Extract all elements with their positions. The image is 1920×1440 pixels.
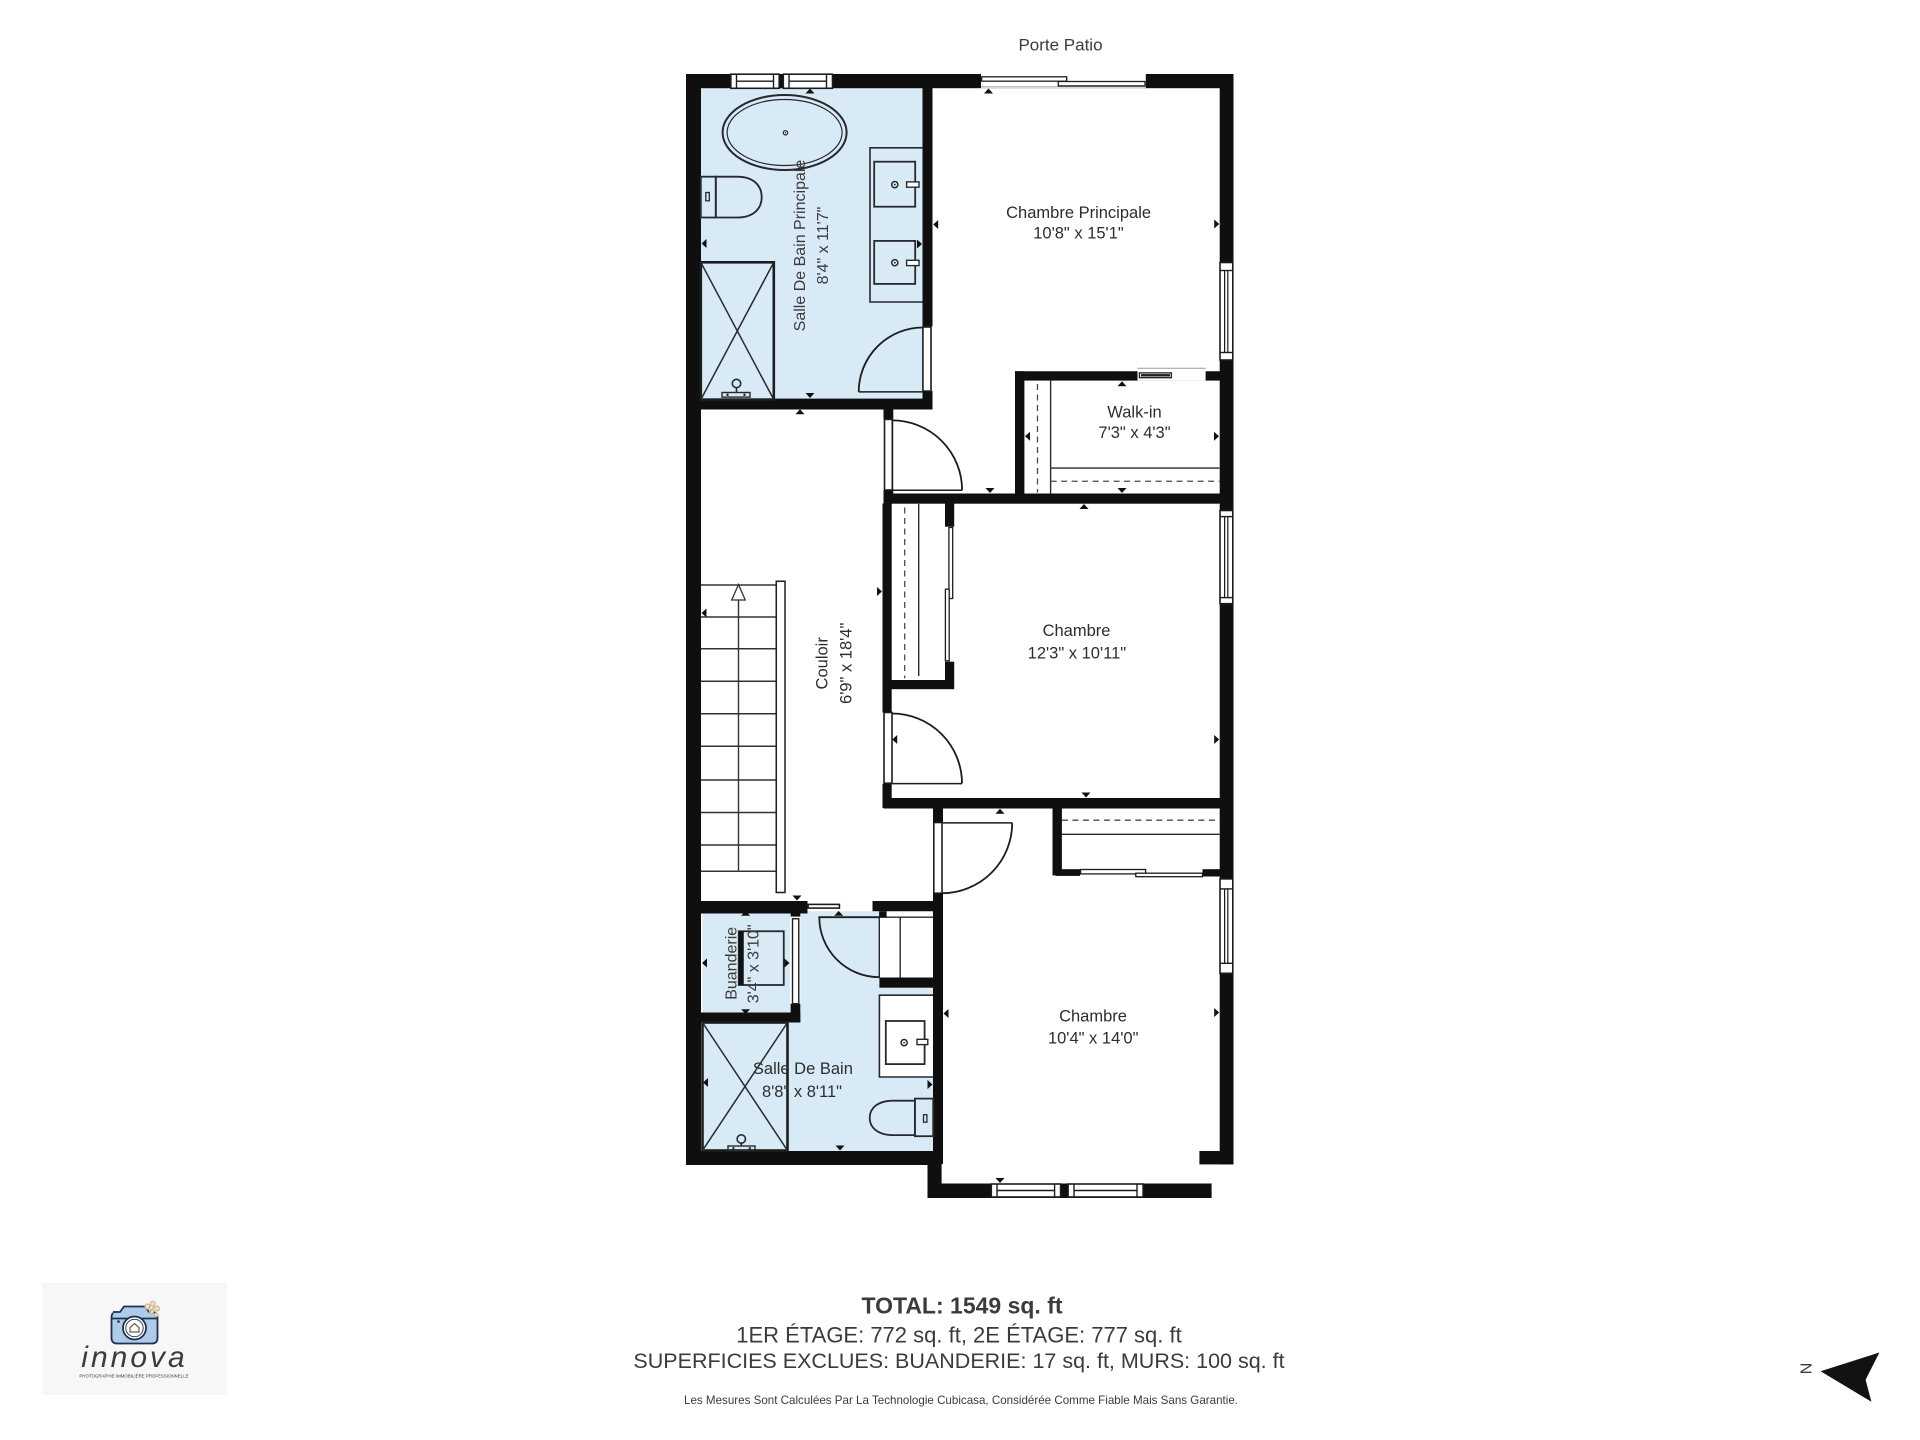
svg-text:1ER ÉTAGE: 772 sq. ft, 2E ÉTAG: 1ER ÉTAGE: 772 sq. ft, 2E ÉTAGE: 777 sq.…: [736, 1323, 1182, 1348]
svg-text:Walk-in: Walk-in: [1107, 403, 1161, 421]
svg-text:3'4" x 3'10": 3'4" x 3'10": [746, 924, 763, 1003]
svg-text:8'4" x 11'7": 8'4" x 11'7": [815, 207, 832, 285]
svg-text:Chambre Principale: Chambre Principale: [1006, 204, 1151, 222]
svg-text:TOTAL: 1549 sq. ft: TOTAL: 1549 sq. ft: [861, 1293, 1062, 1319]
svg-text:innova: innova: [81, 1341, 187, 1374]
svg-text:Porte Patio: Porte Patio: [1018, 36, 1102, 55]
svg-text:10'8" x 15'1": 10'8" x 15'1": [1033, 225, 1124, 243]
svg-text:Chambre: Chambre: [1043, 622, 1111, 640]
svg-text:Salle De Bain Principale: Salle De Bain Principale: [792, 160, 809, 332]
svg-text:SUPERFICIES EXCLUES: BUANDERIE: SUPERFICIES EXCLUES: BUANDERIE: 17 sq. f…: [633, 1349, 1284, 1373]
svg-text:Buanderie: Buanderie: [724, 927, 741, 1000]
svg-text:10'4" x 14'0": 10'4" x 14'0": [1048, 1030, 1139, 1048]
svg-text:PHOTOGRAPHIE IMMOBILIÈRE PROFE: PHOTOGRAPHIE IMMOBILIÈRE PROFESSIONNELLE: [79, 1374, 188, 1379]
svg-text:6'9" x 18'4": 6'9" x 18'4": [838, 623, 856, 704]
svg-text:Couloir: Couloir: [814, 637, 832, 690]
svg-text:Chambre: Chambre: [1059, 1008, 1127, 1026]
svg-text:N: N: [1799, 1363, 1816, 1375]
svg-text:12'3" x 10'11": 12'3" x 10'11": [1028, 644, 1127, 662]
svg-text:8'8" x 8'11": 8'8" x 8'11": [762, 1083, 842, 1101]
svg-text:7'3" x 4'3": 7'3" x 4'3": [1098, 424, 1170, 442]
svg-text:Salle De Bain: Salle De Bain: [753, 1060, 853, 1078]
svg-text:Les Mesures Sont Calculées Par: Les Mesures Sont Calculées Par La Techno…: [684, 1394, 1238, 1407]
